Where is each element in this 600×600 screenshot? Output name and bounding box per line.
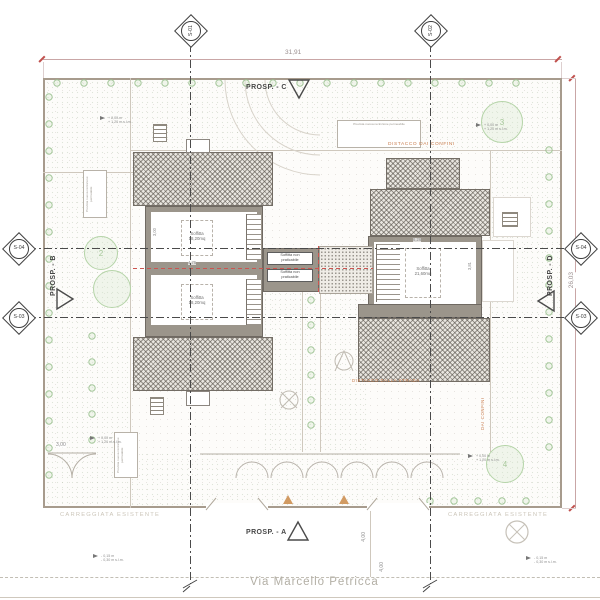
road-far-edge (0, 597, 600, 598)
site-plan-drawing: Soffitta 18,20mq Soffitta 18,20mq 4,75 3… (0, 0, 600, 600)
section-line-s04 (12, 248, 588, 249)
dim-gate-width: 3,00 (56, 443, 66, 448)
tree-number: 2 (99, 249, 103, 258)
courtyard-path-left (302, 292, 303, 452)
room-label-left-lower: Soffitta 18,20mq (175, 295, 219, 306)
marker-circle: S-03 (571, 308, 591, 328)
setback-note-confini: DISTACCO DAI CONFINI (388, 143, 455, 148)
ghost-structure-lower (482, 240, 514, 302)
stairs-left-upper (246, 214, 261, 260)
carriageway-label-left: CARREGGIATA ESISTENTE (60, 512, 160, 518)
room-area: 21,60mq (401, 271, 445, 276)
dim-line-right (575, 78, 576, 508)
section-line-s01 (190, 44, 191, 584)
dim-room-right-height: 3,81 (468, 262, 472, 270)
driveway-opening (206, 503, 268, 511)
dim-site-depth: 26,03 (568, 272, 577, 288)
connector-roof (319, 246, 373, 294)
tree: 2 (84, 236, 118, 270)
section-marker-s04-right: S-04 (563, 231, 597, 265)
marker-label: S-04 (576, 246, 587, 251)
dim-room-left-height: 3,00 (153, 228, 157, 236)
section-line-s02 (430, 44, 431, 584)
level-value: - 0,30 m s.l.m. (534, 560, 557, 564)
section-marker-s04-left: S-04 (1, 231, 35, 265)
driveway-opening (367, 503, 429, 511)
section-line-s03 (12, 317, 588, 318)
marker-label: S-03 (14, 315, 25, 320)
room-area: 18,20mq (175, 300, 219, 305)
roof-right-bottom (358, 318, 490, 382)
garden-bottom (130, 452, 490, 506)
stairs-left-lower (246, 279, 261, 325)
dim-road-setback: 4,00 (362, 532, 367, 542)
setback-note-confini-v: DAI CONFINI (481, 384, 485, 430)
marker-circle: S-01 (181, 21, 201, 41)
wall-right-bottom (358, 304, 482, 318)
level-value: + 1,20 m s.l.m. (484, 127, 508, 131)
room-label-right: Soffitta 21,60mq (401, 266, 445, 277)
connector-label-line: praticabile (268, 258, 312, 263)
marker-label: S-03 (576, 315, 587, 320)
roof-left-top (133, 152, 273, 206)
room-area: 18,20mq (175, 236, 219, 241)
carriageway-label-right: CARREGGIATA ESISTENTE (448, 512, 548, 518)
driveway-arrow (283, 495, 293, 504)
courtyard-path-right (320, 292, 321, 452)
boundary-red-dashed (133, 268, 373, 269)
level-marker: + 0,00 m + 1,20 m s.l.m. (98, 436, 122, 445)
prospect-label-c: PROSP. - C (246, 84, 287, 91)
room-label-left-upper: Soffitta 18,20mq (175, 231, 219, 242)
level-marker: + 0,00 m + 1,20 m s.l.m. (108, 116, 132, 125)
marker-label: S-01 (188, 26, 193, 37)
tree: 4 (486, 445, 524, 483)
note-text: Prevista nuova recinzione permeabile (85, 176, 93, 211)
roof-left-bottom (133, 337, 273, 391)
marker-label: S-02 (428, 26, 433, 37)
connector-label-bottom: Soffitta non praticabile (267, 269, 313, 282)
manhole-icon (509, 524, 525, 540)
prospect-arrow-a (288, 522, 308, 540)
section-marker-s02: S-02 (413, 13, 447, 47)
ext-stair-right (502, 212, 518, 227)
driveway-arrow (339, 495, 349, 504)
dim-ext (562, 78, 576, 79)
boundary-red-dashed-v (318, 246, 319, 294)
section-marker-s03-left: S-03 (1, 300, 35, 334)
level-marker: + 0,00 m + 1,20 m s.l.m. (476, 454, 500, 463)
dim-ext (561, 62, 562, 78)
street-name: Via Marcello Petricca (250, 576, 379, 588)
prospect-label-b: PROSP. - B (50, 246, 57, 296)
stairs-right (376, 244, 400, 302)
dim-line-top (43, 59, 562, 60)
level-marker-road: - 0,15 m - 0,30 m s.l.m. (101, 554, 124, 563)
level-value: + 1,20 m s.l.m. (476, 458, 500, 462)
road-dim-guide (370, 510, 371, 577)
connector-label-top: Soffitta non praticabile (267, 252, 313, 265)
marker-circle: S-03 (9, 308, 29, 328)
level-marker-road: - 0,15 m - 0,30 m s.l.m. (534, 556, 557, 565)
setback-note-strada: DISTACCO DALLA STRADA (352, 379, 420, 383)
level-value: + 1,20 m s.l.m. (108, 120, 132, 124)
note-text: Prevista nuova recinzione permeabile (353, 122, 405, 126)
dim-ext (43, 62, 44, 78)
tree-number: 4 (503, 460, 507, 469)
dim-road-width: 4,00 (380, 562, 385, 572)
tree (93, 270, 131, 308)
dim-ext (562, 508, 576, 509)
garden-courtyard (263, 292, 369, 452)
marker-circle: S-04 (9, 239, 29, 259)
manhole-icon (509, 524, 525, 540)
level-value: - 0,30 m s.l.m. (101, 558, 124, 562)
manhole-icon (506, 521, 528, 543)
dim-room-right-width: 6,26 (413, 238, 421, 242)
marker-circle: S-04 (571, 239, 591, 259)
ext-stair-left-top (153, 124, 167, 142)
dim-site-width: 31,91 (284, 50, 302, 57)
connector-label-line: praticabile (268, 275, 312, 280)
ext-stair-left-bottom (150, 397, 164, 415)
marker-circle: S-02 (421, 21, 441, 41)
marker-label: S-04 (14, 246, 25, 251)
level-marker: + 0,00 m + 1,20 m s.l.m. (484, 123, 508, 132)
note-box-left: Prevista nuova recinzione permeabile (83, 170, 107, 218)
roof-right-upper-small (386, 158, 460, 189)
tree: 3 (481, 101, 523, 143)
level-value: + 1,20 m s.l.m. (98, 440, 122, 444)
prospect-label-d: PROSP. - D (547, 242, 554, 296)
section-marker-s01: S-01 (173, 13, 207, 47)
prospect-label-a: PROSP. - A (246, 529, 287, 536)
section-marker-s03-right: S-03 (563, 300, 597, 334)
